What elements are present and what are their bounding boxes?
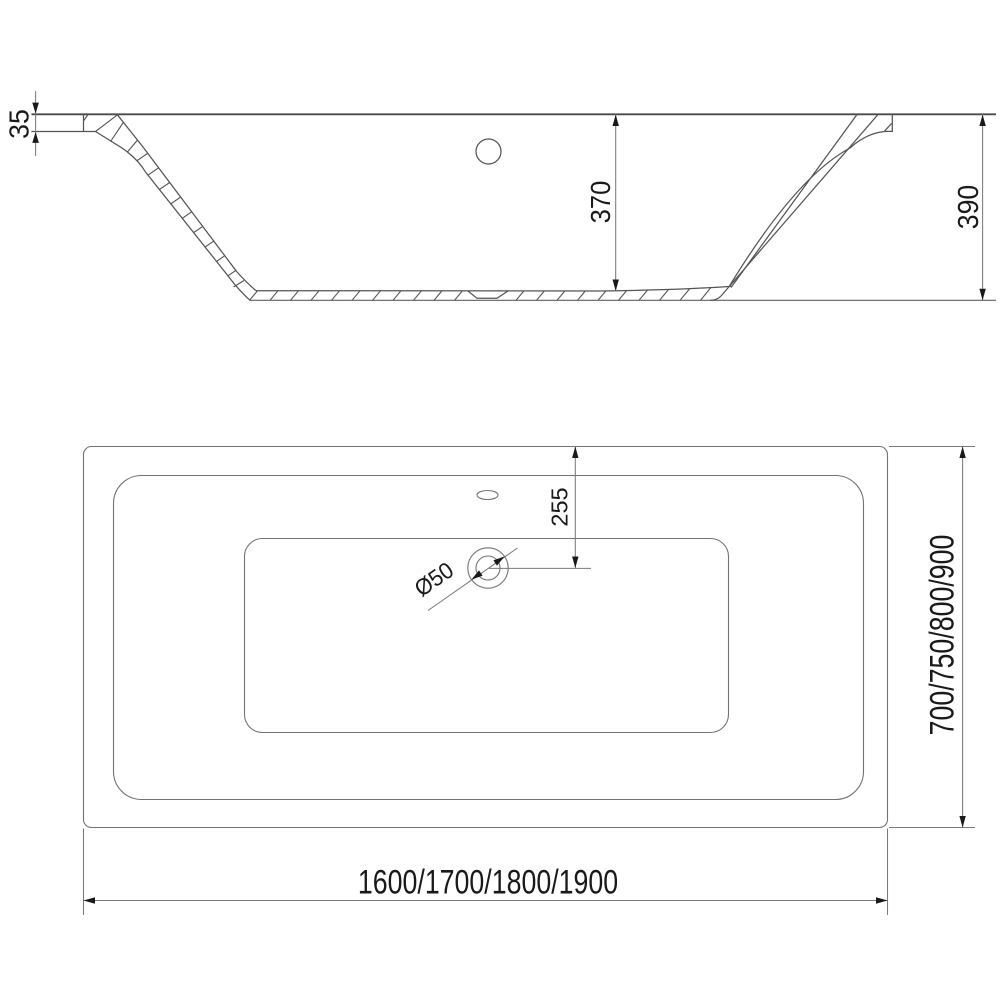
svg-text:1600/1700/1800/1900: 1600/1700/1800/1900 [358,862,618,901]
svg-text:370: 370 [585,181,616,224]
svg-text:35: 35 [3,109,34,139]
svg-text:255: 255 [547,487,573,526]
svg-text:390: 390 [952,185,984,230]
svg-text:700/750/800/900: 700/750/800/900 [922,535,961,736]
